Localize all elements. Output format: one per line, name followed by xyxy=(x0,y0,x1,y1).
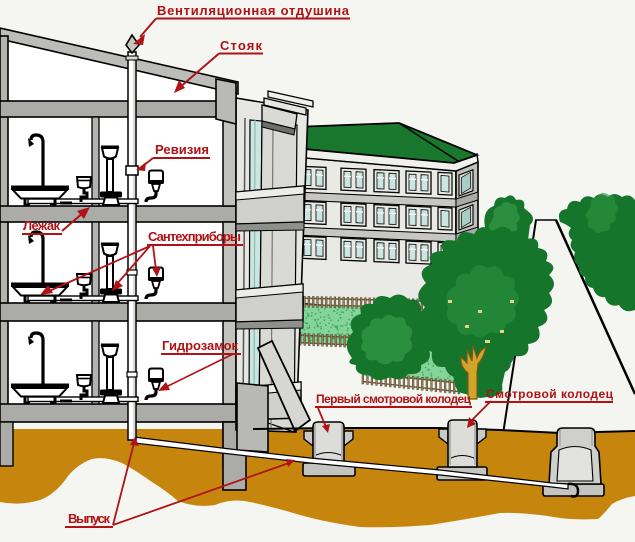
svg-text:Гидрозамок: Гидрозамок xyxy=(162,338,238,353)
svg-text:Ревизия: Ревизия xyxy=(155,142,209,157)
svg-text:Смотровой колодец: Смотровой колодец xyxy=(486,387,614,401)
svg-text:Сантехприборы: Сантехприборы xyxy=(148,229,241,244)
svg-text:Лежак: Лежак xyxy=(23,218,60,233)
svg-text:Первый смотровой колодец: Первый смотровой колодец xyxy=(316,392,472,406)
svg-text:Стояк: Стояк xyxy=(220,38,262,53)
svg-text:Выпуск: Выпуск xyxy=(68,511,110,526)
svg-text:Вентиляционная отдушина: Вентиляционная отдушина xyxy=(157,3,350,18)
